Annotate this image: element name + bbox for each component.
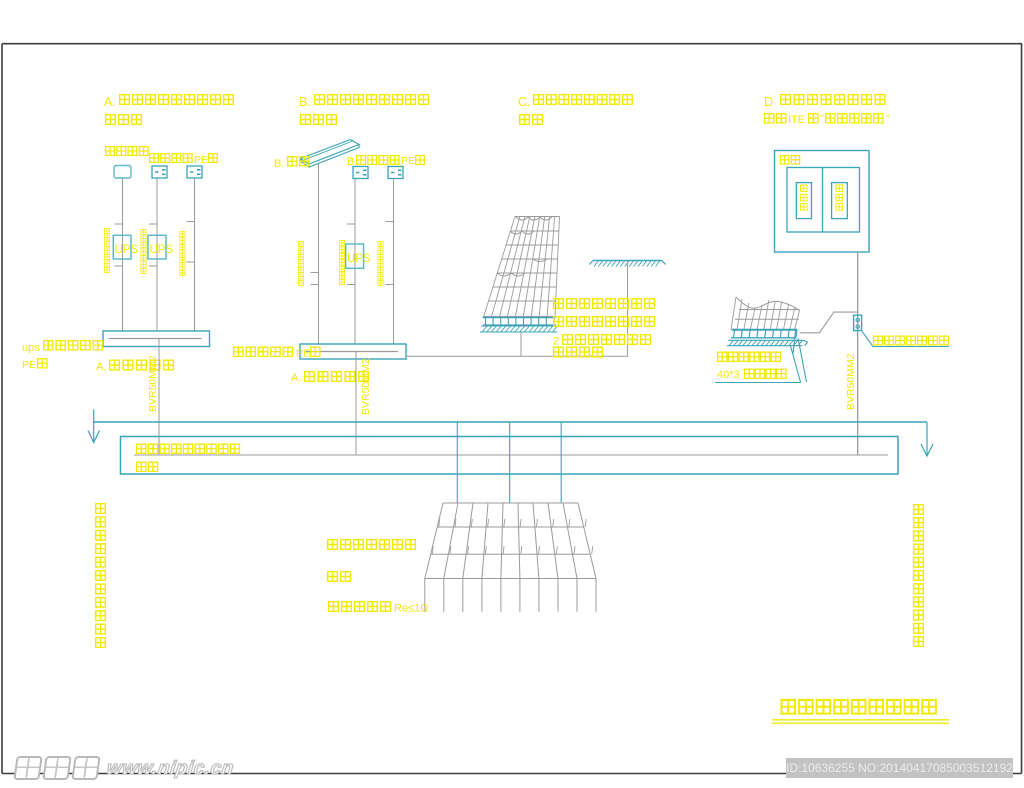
svg-text:BVR50MM2: BVR50MM2: [845, 353, 857, 410]
svg-text:PE: PE: [22, 359, 36, 371]
svg-text:C.: C.: [518, 95, 531, 109]
svg-text:A.: A.: [96, 361, 106, 373]
svg-text:UPS: UPS: [347, 253, 371, 265]
svg-text:UPS: UPS: [150, 244, 174, 256]
svg-text:D: D: [764, 95, 773, 109]
svg-text:ITE: ITE: [788, 114, 805, 126]
svg-text:A.: A.: [104, 95, 116, 109]
svg-text:": ": [820, 113, 824, 125]
svg-text:": ": [886, 113, 890, 125]
svg-text:ups: ups: [22, 342, 40, 354]
svg-text:UPS: UPS: [115, 244, 139, 256]
svg-text:40*3: 40*3: [717, 369, 740, 381]
svg-text:A.: A.: [291, 372, 301, 384]
svg-text:B.: B.: [299, 95, 311, 109]
svg-text:PE: PE: [194, 154, 208, 166]
svg-text:PE: PE: [296, 348, 310, 360]
svg-text:Re≤1Ω: Re≤1Ω: [394, 603, 428, 615]
svg-text:PE: PE: [401, 155, 415, 167]
svg-text:2: 2: [553, 336, 559, 348]
svg-text:BVR50MM2: BVR50MM2: [360, 358, 372, 415]
svg-text:B.: B.: [274, 158, 284, 170]
svg-text:BVR50MM2: BVR50MM2: [147, 355, 159, 412]
